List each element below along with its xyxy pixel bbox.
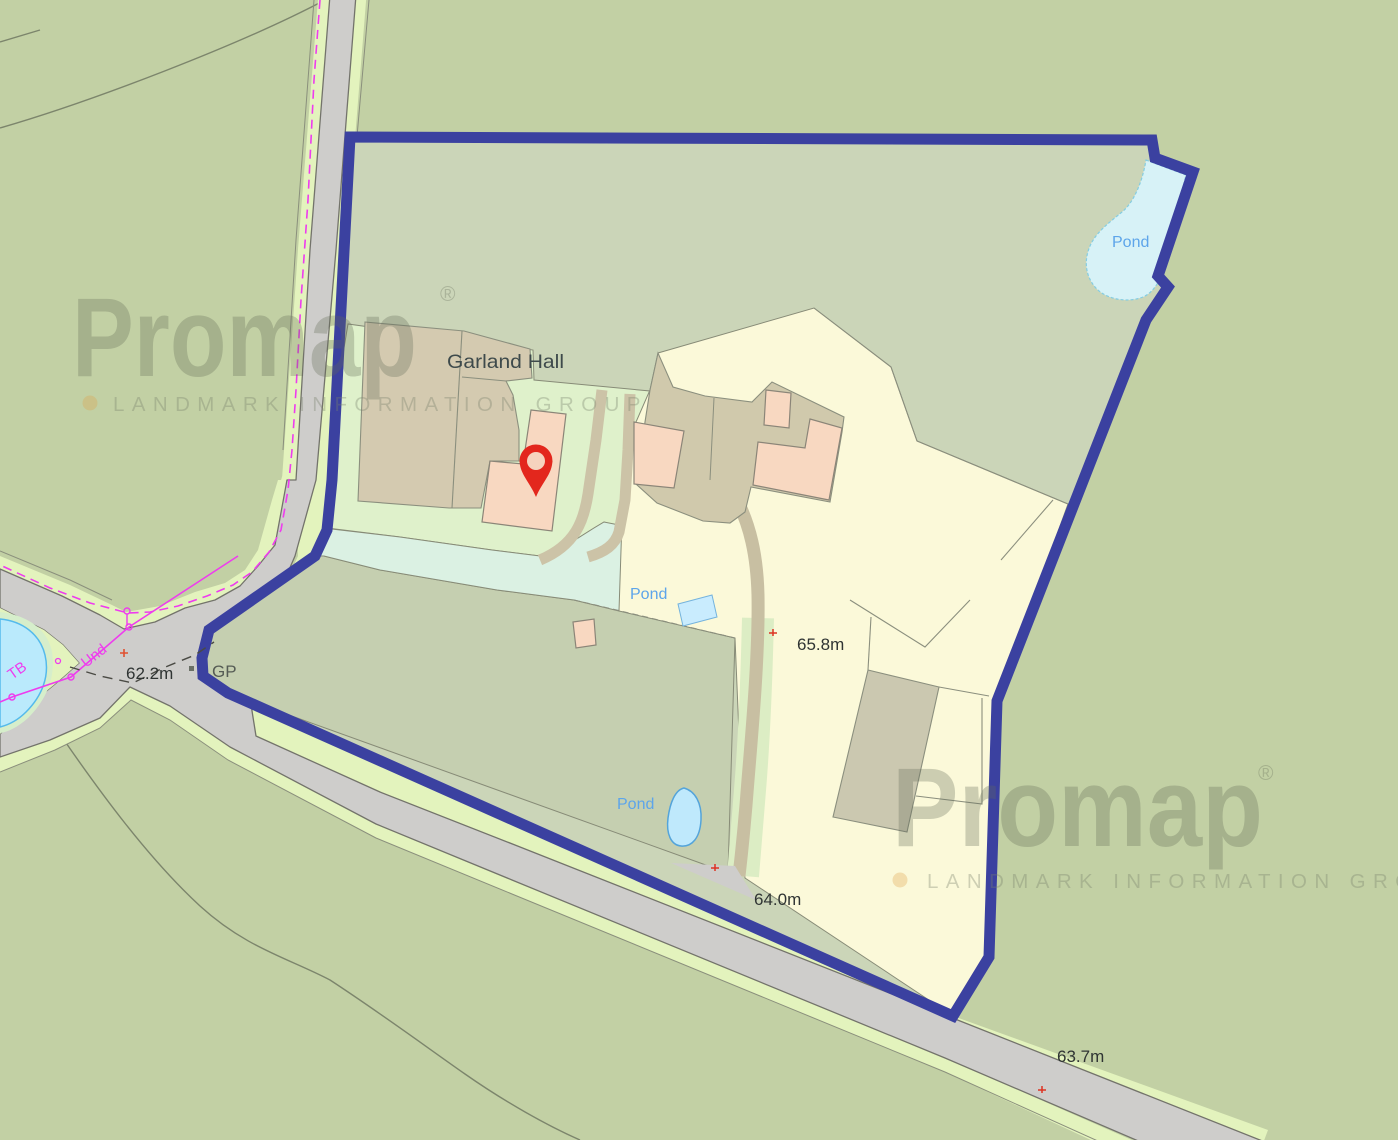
svg-text:Pond: Pond	[1112, 234, 1149, 251]
svg-text:Garland Hall: Garland Hall	[447, 351, 564, 373]
svg-text:LANDMARK INFORMATION GROUP: LANDMARK INFORMATION GROUP	[927, 870, 1398, 893]
svg-text:Pond: Pond	[630, 586, 667, 603]
svg-text:GP: GP	[212, 662, 237, 681]
svg-text:Promap: Promap	[72, 275, 417, 400]
svg-text:63.7m: 63.7m	[1057, 1047, 1104, 1066]
svg-text:LANDMARK INFORMATION GROUP: LANDMARK INFORMATION GROUP	[113, 393, 648, 416]
svg-text:62.2m: 62.2m	[126, 664, 173, 683]
svg-text:65.8m: 65.8m	[797, 635, 844, 654]
svg-text:Promap: Promap	[892, 745, 1263, 870]
svg-text:®: ®	[440, 283, 456, 306]
svg-text:®: ®	[1258, 762, 1274, 785]
svg-text:Pond: Pond	[617, 796, 654, 813]
svg-text:64.0m: 64.0m	[754, 890, 801, 909]
